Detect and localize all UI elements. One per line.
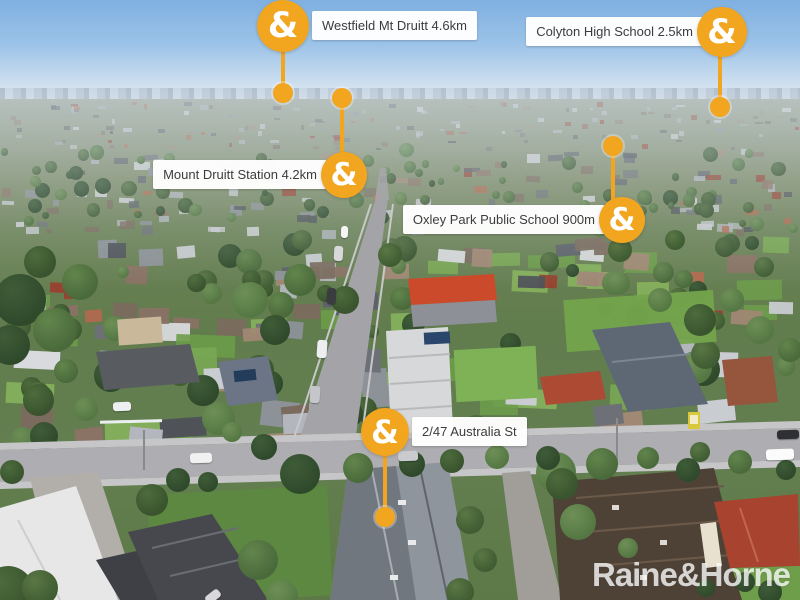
marker-location-dot xyxy=(375,507,395,527)
poi-markers-layer: Westfield Mt Druitt 4.6km&Colyton High S… xyxy=(0,0,800,600)
marker-location-dot xyxy=(603,136,623,156)
marker-label-property-address: 2/47 Australia St xyxy=(412,417,527,446)
brand-badge-icon: & xyxy=(321,152,367,198)
marker-label-oxley-park-public-school: Oxley Park Public School 900m xyxy=(403,205,605,234)
marker-label-westfield-mt-druitt: Westfield Mt Druitt 4.6km xyxy=(312,11,477,40)
marker-location-dot xyxy=(710,97,730,117)
brand-badge-icon: & xyxy=(361,408,409,456)
brand-badge-icon: & xyxy=(257,0,309,52)
agency-watermark: Raine&Horne xyxy=(592,556,790,594)
aerial-photo: Westfield Mt Druitt 4.6km&Colyton High S… xyxy=(0,0,800,600)
brand-badge-icon: & xyxy=(697,7,747,57)
brand-badge-icon: & xyxy=(599,197,645,243)
marker-location-dot xyxy=(332,88,352,108)
marker-location-dot xyxy=(273,83,293,103)
marker-label-colyton-high-school: Colyton High School 2.5km xyxy=(526,17,703,46)
marker-label-mount-druitt-station: Mount Druitt Station 4.2km xyxy=(153,160,327,189)
